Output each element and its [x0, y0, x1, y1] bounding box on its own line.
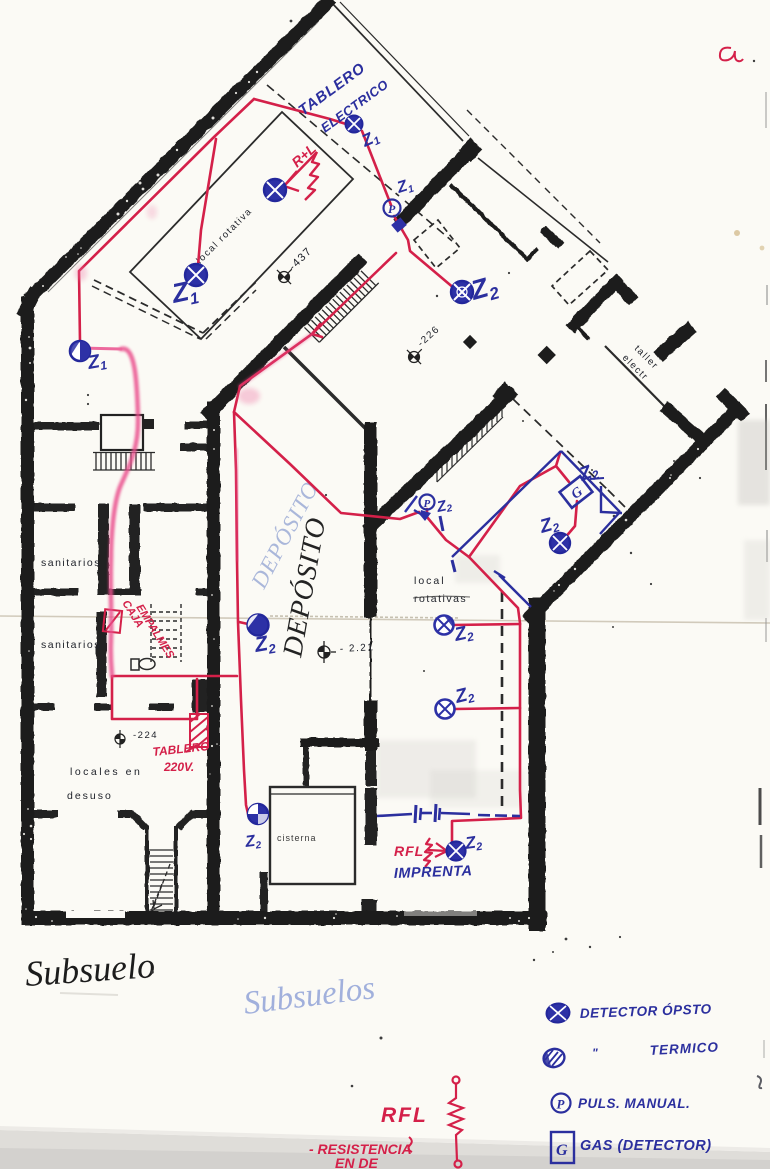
svg-text:-224: -224: [133, 730, 158, 741]
svg-text:EN DE: EN DE: [335, 1155, 378, 1169]
svg-text:PULS. MANUAL.: PULS. MANUAL.: [578, 1096, 690, 1111]
svg-text:cisterna: cisterna: [277, 833, 317, 843]
svg-text:locales en: locales en: [70, 766, 142, 778]
svg-text:sanitarios: sanitarios: [41, 639, 101, 651]
svg-text:220V.: 220V.: [163, 760, 194, 774]
svg-text:sanitarios: sanitarios: [41, 557, 101, 569]
svg-text:P: P: [388, 202, 396, 216]
svg-text:P: P: [424, 498, 431, 510]
svg-text:G: G: [556, 1142, 568, 1159]
svg-text:P: P: [557, 1097, 566, 1112]
svg-text:IMPRENTA: IMPRENTA: [394, 863, 473, 882]
svg-text:RFL: RFL: [394, 843, 424, 859]
svg-text:": ": [592, 1046, 598, 1060]
svg-text:- 2.21: - 2.21: [340, 642, 375, 655]
svg-text:desuso: desuso: [67, 790, 113, 802]
svg-text:local: local: [414, 575, 446, 587]
svg-text:RFL: RFL: [381, 1104, 428, 1127]
svg-text:rotativas: rotativas: [414, 593, 467, 605]
svg-text:GAS (DETECTOR): GAS (DETECTOR): [580, 1138, 712, 1154]
